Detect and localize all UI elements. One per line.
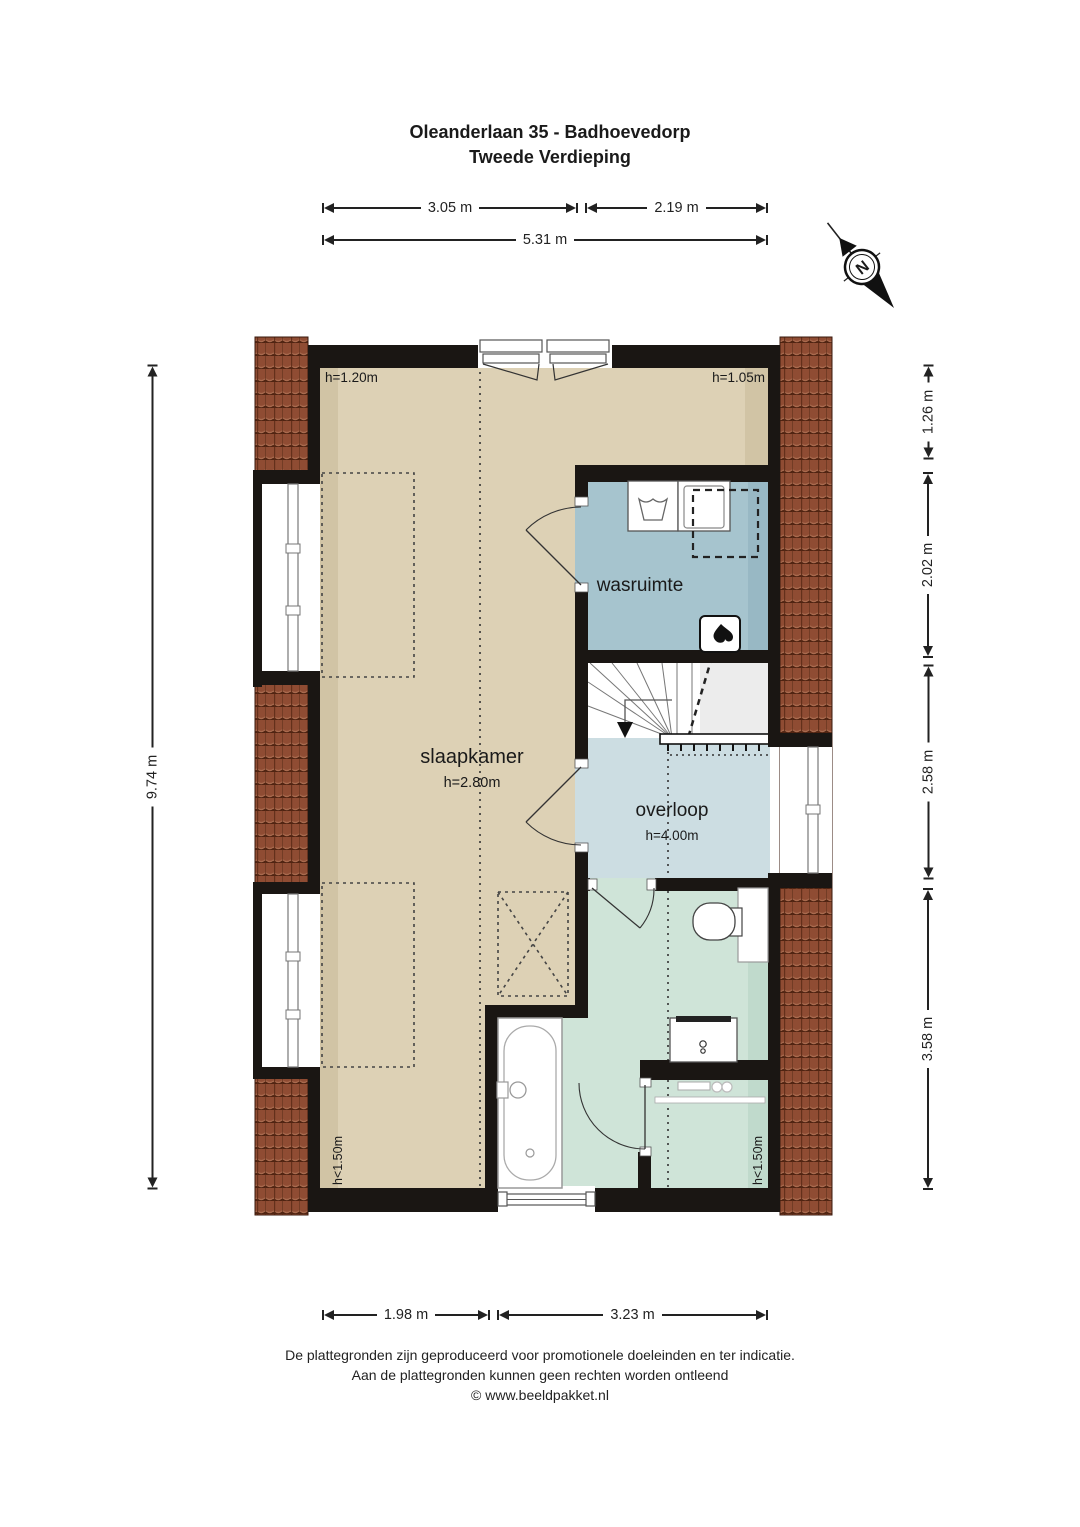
footer-copyright: © www.beeldpakket.nl [0,1385,1080,1405]
dimension-label: 1.98 m [377,1307,435,1323]
washing-machine [628,481,678,531]
boiler [700,616,740,652]
window-left-1 [262,484,320,671]
room-height-slaapkamer: h=2.80m [444,775,501,791]
floorplan-drawing: slaapkamer h=2.80m wasruimte overloop h=… [240,330,850,1225]
bathtub [497,1018,562,1188]
dimension-top-right: 2.19 m [585,201,768,215]
dimension-label: 5.31 m [516,232,574,248]
stairs-railing [660,734,770,744]
dimension-right-4: 3.58 m [921,888,935,1190]
room-label-slaapkamer: slaapkamer [420,746,524,768]
room-label-overloop: overloop [636,800,709,821]
slaapkamer-low-ceiling-zone-left [320,368,338,1190]
dimension-top-total: 5.31 m [322,233,768,247]
height-label-top-right: h=1.05m [712,370,765,385]
dimension-label: 2.02 m [920,536,936,594]
dimension-left-total: 9.74 m [146,365,160,1190]
page-title-line2: Tweede Verdieping [10,145,1080,170]
dimension-top-left: 3.05 m [322,201,578,215]
dimension-label: 9.74 m [145,748,161,806]
dimension-label: 3.05 m [421,200,479,216]
dimension-label: 2.58 m [921,743,937,801]
footer-disclaimer-line2: Aan de plattegronden kunnen geen rechten… [0,1365,1080,1385]
stairwell-landing-shade [700,660,768,738]
roof-left [255,337,308,1215]
window-bottom [498,1186,595,1214]
dimension-bottom-right: 3.23 m [497,1308,768,1322]
dimension-right-3: 2.58 m [922,665,936,880]
dimension-right-2: 2.02 m [921,472,935,658]
page-title-line1: Oleanderlaan 35 - Badhoevedorp [10,120,1080,145]
compass-north-icon: N [812,215,912,320]
dimension-right-1: 1.26 m [922,365,936,460]
floorplan-page: Oleanderlaan 35 - Badhoevedorp Tweede Ve… [0,0,1080,1527]
washbasin-vanity [670,1016,737,1062]
footer-disclaimer-line1: De plattegronden zijn geproduceerd voor … [0,1345,1080,1365]
dimension-label: 3.23 m [603,1307,661,1323]
window-left-2 [262,894,320,1067]
dimension-label: 1.26 m [921,383,937,441]
height-label-bottom-left: h<1.50m [331,1136,345,1185]
room-height-overloop: h=4.00m [646,828,699,843]
dimension-label: 2.19 m [647,200,705,216]
dimension-label: 3.58 m [920,1010,936,1068]
height-label-top-left: h=1.20m [325,370,378,385]
room-label-wasruimte: wasruimte [596,575,684,596]
wasruimte-low-ceiling-zone [748,482,768,652]
height-label-bottom-right: h<1.50m [751,1136,765,1185]
dimension-bottom-left: 1.98 m [322,1308,490,1322]
window-right [780,747,832,873]
